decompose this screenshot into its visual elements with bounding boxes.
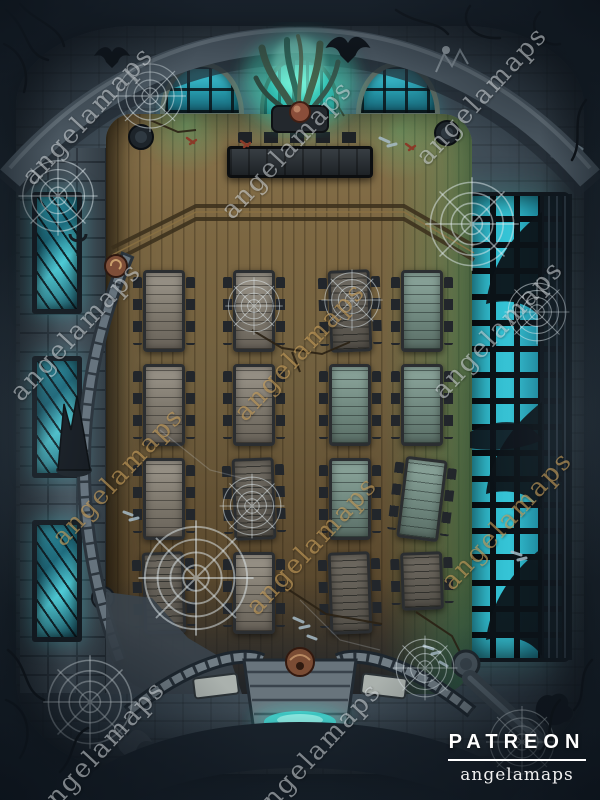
long-table bbox=[401, 270, 443, 352]
stained-glass-window-left-1 bbox=[32, 192, 82, 314]
left-brick-wall bbox=[20, 148, 112, 693]
patreon-branding: PATREON angelamaps bbox=[442, 731, 592, 785]
long-table-webbed bbox=[233, 270, 275, 352]
long-table-webbed bbox=[142, 551, 187, 634]
author-label: angelamaps bbox=[442, 765, 592, 785]
battle-map-canvas: angelamaps angelamaps angelamaps angelam… bbox=[0, 0, 600, 800]
long-table-webbed bbox=[232, 457, 277, 540]
long-table-broken bbox=[400, 551, 444, 610]
patreon-label: PATREON bbox=[442, 731, 592, 754]
long-table bbox=[143, 458, 185, 540]
patreon-divider bbox=[448, 759, 586, 761]
long-table-wrecked bbox=[328, 551, 373, 634]
long-table-tilted bbox=[396, 456, 448, 543]
long-table bbox=[143, 270, 185, 352]
long-table bbox=[329, 364, 371, 446]
